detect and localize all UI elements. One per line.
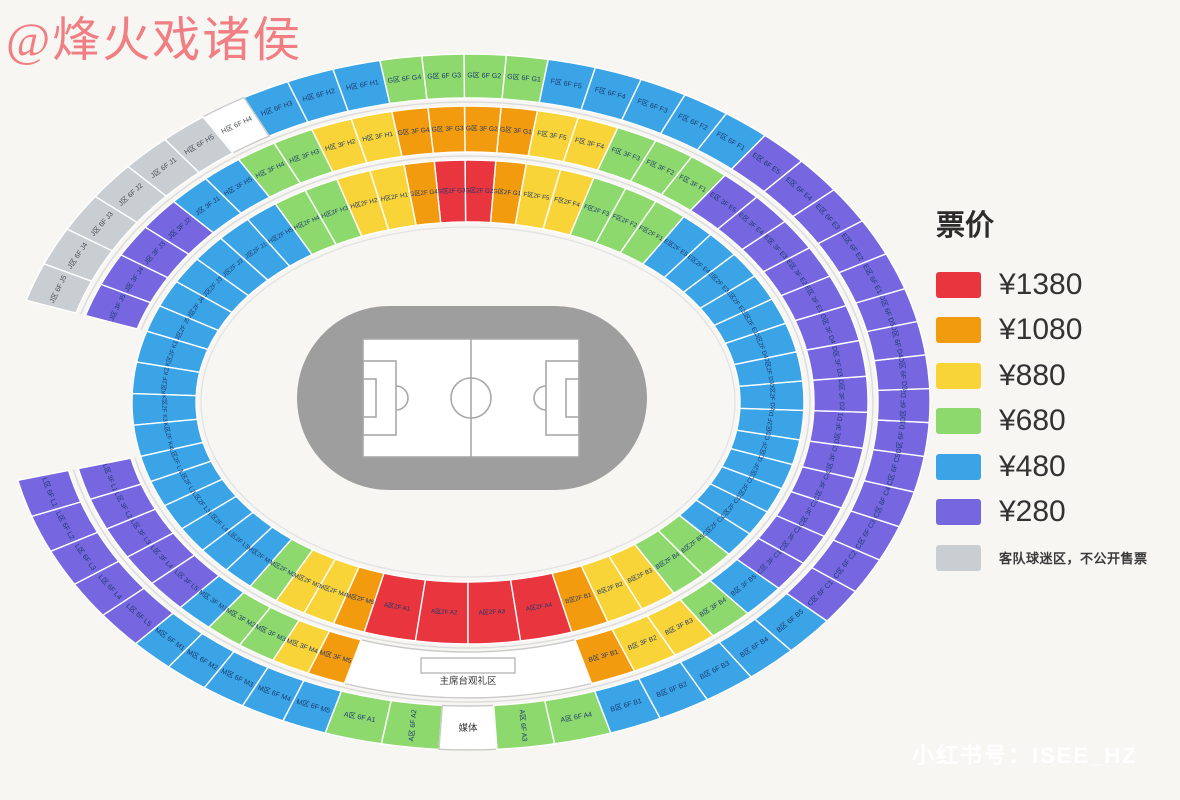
legend-title: 票价 <box>936 202 1174 244</box>
price-legend: 票价 ¥1380¥1080¥880¥680¥480¥280客队球迷区，不公开售票 <box>936 202 1174 581</box>
seat-segment-label: D区2F D2 <box>768 383 776 411</box>
seat-segment-label: A区2F A2 <box>431 608 458 616</box>
legend-price-label: 客队球迷区，不公开售票 <box>999 548 1148 567</box>
legend-item: ¥480 <box>936 444 1174 490</box>
legend-price-label: ¥1380 <box>999 268 1082 302</box>
rostrum-label: 主席台观礼区 <box>439 675 497 687</box>
watermark-xiaohongshu: 小红书号：ISEE_HZ <box>912 738 1138 770</box>
seat-segment-label: G区 6F G3 <box>427 71 461 80</box>
legend-price-label: ¥480 <box>999 450 1066 484</box>
legend-price-label: ¥680 <box>999 404 1066 438</box>
legend-item: ¥280 <box>936 490 1174 536</box>
legend-price-label: ¥1080 <box>999 313 1082 347</box>
legend-color-swatch-yellow <box>936 363 981 389</box>
legend-price-label: ¥280 <box>999 495 1066 529</box>
legend-item: 客队球迷区，不公开售票 <box>936 535 1174 581</box>
seat-segment-label: A区2F A3 <box>478 608 505 616</box>
rostrum-box <box>421 658 515 673</box>
seat-segment-label: D区 6F D2 <box>899 389 907 422</box>
legend-item: ¥680 <box>936 399 1174 445</box>
seat-segment-label: G区2F G3 <box>437 187 466 195</box>
watermark-author: @烽火戏诸侯 <box>6 0 302 70</box>
legend-color-swatch-red <box>936 272 981 298</box>
legend-price-label: ¥880 <box>999 359 1066 393</box>
legend-color-swatch-green <box>936 408 981 434</box>
seat-segment-label: K区2F K3 <box>160 395 168 423</box>
media-zone-label: 媒体 <box>458 722 478 734</box>
legend-color-swatch-blue <box>936 454 981 480</box>
seat-segment-label: D区 3F D2 <box>837 379 846 411</box>
legend-item: ¥1080 <box>936 308 1174 354</box>
seat-segment-label: G区 6F G2 <box>467 71 501 80</box>
legend-color-swatch-purple <box>936 499 981 525</box>
seat-segment-label: G区2F G2 <box>465 187 494 195</box>
legend-color-swatch-orange <box>936 317 981 343</box>
seat-segment-label: G区 3F G3 <box>432 124 465 133</box>
legend-item: ¥1380 <box>936 262 1174 308</box>
legend-rows: ¥1380¥1080¥880¥680¥480¥280客队球迷区，不公开售票 <box>936 262 1174 581</box>
legend-color-swatch-gray <box>936 545 981 571</box>
seat-segment-label: G区 3F G2 <box>466 124 498 133</box>
legend-item: ¥880 <box>936 353 1174 399</box>
football-pitch <box>363 339 579 457</box>
